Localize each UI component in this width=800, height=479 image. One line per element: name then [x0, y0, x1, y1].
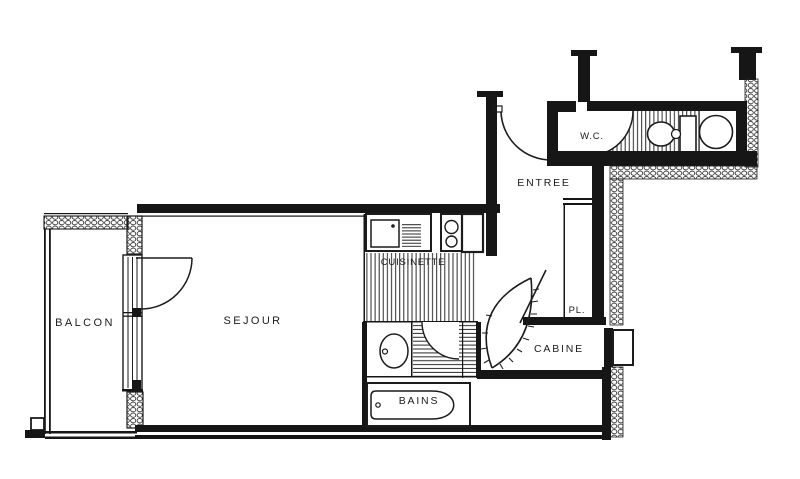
cabine-window [613, 330, 633, 365]
balcony-bottom-wall-inner [45, 437, 137, 440]
room-label-wc: W.C. [580, 131, 604, 142]
kitchenette [364, 214, 484, 322]
room-label-balcon: BALCON [55, 317, 115, 329]
entry [477, 91, 551, 256]
cabine-bottom-wall [477, 370, 610, 379]
closet-top-line-a [563, 198, 601, 200]
washbasin-compartment-divider [411, 322, 413, 377]
room-label-bains: BAINS [399, 395, 440, 407]
toilet-bowl [648, 122, 675, 146]
washbasin-compartment-bottom [367, 376, 478, 378]
wc-top-wall-right [587, 101, 747, 111]
cabin [477, 270, 610, 379]
floorplan-canvas: BALCON SEJOUR CUISINETTE BAINS CABINE PL… [0, 0, 800, 479]
room-label-cuisinette: CUISINETTE [381, 257, 445, 268]
cabine-top-wall [523, 317, 606, 325]
door-swing-arc [141, 258, 192, 309]
balcony-step [31, 418, 44, 430]
room-label-entree: ENTREE [517, 177, 570, 189]
exterior-hatch-band-lower [610, 367, 623, 437]
balcony-railing [44, 216, 128, 229]
toilet-tank [680, 116, 696, 152]
bathroom-cabin-divider-wall [476, 322, 481, 378]
window-handle-bottom [132, 380, 141, 389]
washbasin [380, 334, 408, 368]
balcony-top-line [44, 213, 128, 214]
stove [441, 214, 462, 251]
wc-bottom-wall [547, 151, 757, 166]
bay-window-divider [122, 216, 143, 428]
window-bottom-cap [122, 389, 143, 392]
entry-door-arc [501, 112, 551, 160]
sink-faucet-dot [391, 224, 395, 228]
bottom-exterior-wall-inner [135, 435, 610, 439]
balcony-left-wall-inner [49, 229, 51, 434]
bathroom [362, 321, 481, 428]
wc-left-wall [547, 101, 558, 158]
balcony-step-base [25, 430, 45, 438]
kitchen-sink [371, 220, 399, 247]
cabine-right-wall-at-window [604, 328, 613, 367]
entry-left-wall [486, 97, 497, 256]
wc-left-fin-cap [571, 50, 597, 56]
bathroom-floor-divider-line [462, 322, 463, 378]
balcony-left-wall-outer [44, 229, 46, 434]
wc-round-washbasin [700, 116, 733, 149]
wc-right-fin-wall [739, 53, 756, 80]
closet-top-line-b [563, 203, 601, 205]
wc-right-fin-cap [731, 47, 762, 53]
exterior-hatch-band-horizontal [610, 166, 757, 179]
balcony-bottom-wall-outer [45, 431, 137, 434]
right-exterior-wall [592, 163, 757, 440]
room-label-sejour: SEJOUR [223, 315, 282, 327]
exterior-hatch-band-upper [610, 179, 623, 325]
drainboard [402, 223, 421, 247]
window-handle-mid [133, 308, 141, 317]
kitchen-left-boundary [364, 214, 366, 322]
cabin-door-leaf-line [520, 270, 546, 323]
sejour-balcony-door [136, 258, 192, 309]
divider-top-block [127, 216, 142, 254]
closet-left-line [564, 205, 566, 317]
top-exterior-wall [137, 204, 500, 213]
wc-left-fin-wall [578, 56, 590, 102]
toilet-hinge [672, 130, 681, 139]
floorplan-drawing: BALCON SEJOUR CUISINETTE BAINS CABINE PL… [0, 0, 800, 479]
hall-right-wall [592, 163, 604, 323]
entry-wall-cap [477, 91, 503, 97]
room-label-placard: PL. [569, 305, 586, 316]
divider-bottom-block [127, 392, 143, 428]
room-label-cabine: CABINE [534, 343, 584, 355]
top-wall-inner-line [137, 216, 364, 217]
cabinet [462, 214, 483, 252]
wc-room [547, 47, 762, 167]
